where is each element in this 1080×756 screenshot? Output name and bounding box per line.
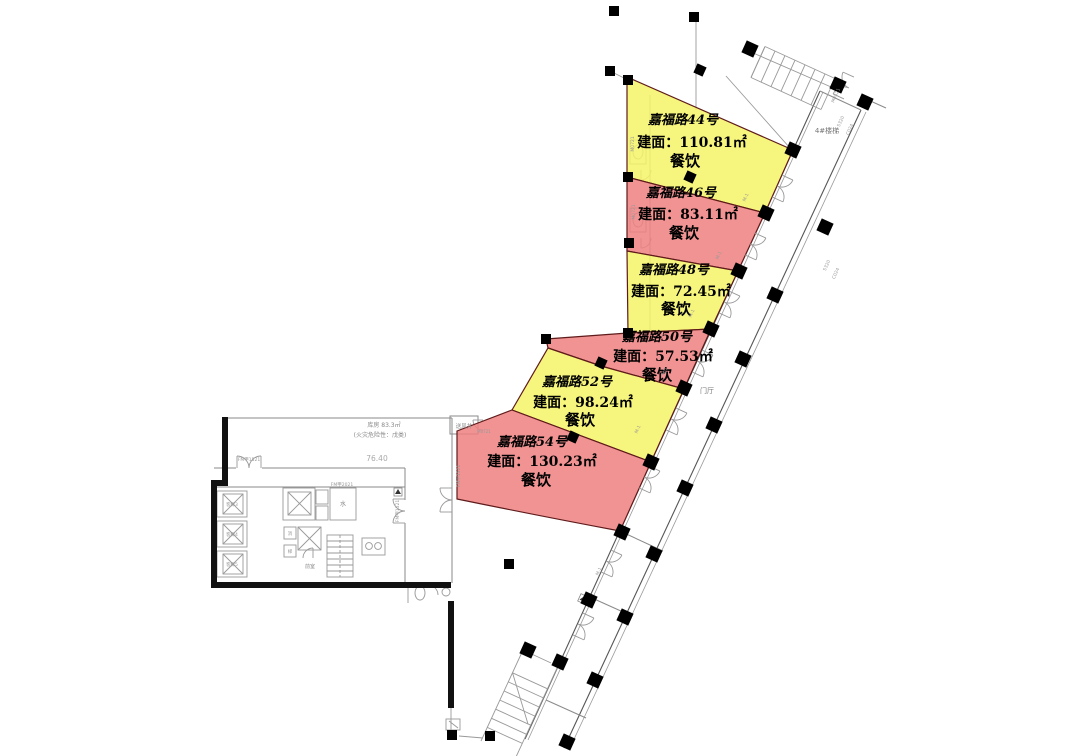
storage-room-label: 库房 83.3㎡ [367,421,400,429]
elevator-3-label: 客梯5 [226,561,238,568]
zone-50-name: 嘉福路50号 [621,329,693,345]
air-shaft-label: 送风井 [456,422,473,430]
elevator-1-label: 客梯3 [226,501,238,508]
zone-52-name: 嘉福路52号 [541,374,613,390]
elevator-2-label: 客梯4 [226,531,238,538]
door-tag-m1-f: M-1 [595,566,604,576]
zone-54-use: 餐饮 [521,471,552,489]
front-room-label: 前室 [305,563,315,570]
zone-54-name: 嘉福路54号 [496,434,568,450]
door-tag-fm1521-c: FM甲1521 [456,465,462,488]
water-room-label: 水 [340,500,346,508]
zone-48-use: 餐饮 [661,300,692,318]
door-tag-m0721-b: M0721 [631,204,637,219]
floor-plan: 嘉福路44号 建面：110.81㎡ 餐饮 嘉福路46号 建面：83.11㎡ 餐饮… [0,0,1080,756]
level-dimension: 76.40 [366,454,388,463]
floor-plan-canvas: 嘉福路44号 建面：110.81㎡ 餐饮 嘉福路46号 建面：83.11㎡ 餐饮… [0,0,1080,756]
zone-52-area: 建面：98.24㎡ [533,394,633,411]
entrance-hall-label: 门厅 [700,386,714,395]
zone-44-area: 建面：110.81㎡ [637,134,747,151]
zone-48-area: 建面：72.45㎡ [631,283,731,300]
door-tag-m0521: M0521 [830,87,842,104]
zone-44-use: 餐饮 [670,152,701,170]
service-elevator-label: 梯 [288,548,293,555]
zone-46-name: 嘉福路46号 [645,185,717,201]
zone-48-name: 嘉福路48号 [638,262,710,278]
window-tag-5320-a: 5320 [836,115,846,128]
zone-46-use: 餐饮 [669,224,700,242]
zone-54-area: 建面：130.23㎡ [487,453,597,470]
fire-elevator-label: 消 [288,530,293,537]
storage-note-label: (火灾危险性：戊类) [354,431,407,439]
zone-52-use: 餐饮 [565,411,596,429]
door-tag-m0721-a: M0721 [630,136,636,151]
door-tag-fm1521-a: FM甲1521 [238,457,261,463]
zone-44-name: 嘉福路44号 [647,112,719,128]
window-tag-5320-b: 5320 [822,259,832,272]
zone-50-area: 建面：57.53㎡ [613,348,713,365]
stair-4-label: 4#楼梯 [815,126,839,135]
left-building [214,416,483,603]
window-tag-c024-b: C024 [831,267,841,280]
door-tag-fm1521-b: FM甲1521 [395,500,401,523]
door-tag-fm2021: FM甲2021 [331,482,354,488]
window-tag-c024-a: C024 [845,123,855,136]
door-tag-m0721-c: M0721 [477,429,491,434]
zone-46-area: 建面：83.11㎡ [638,206,738,223]
